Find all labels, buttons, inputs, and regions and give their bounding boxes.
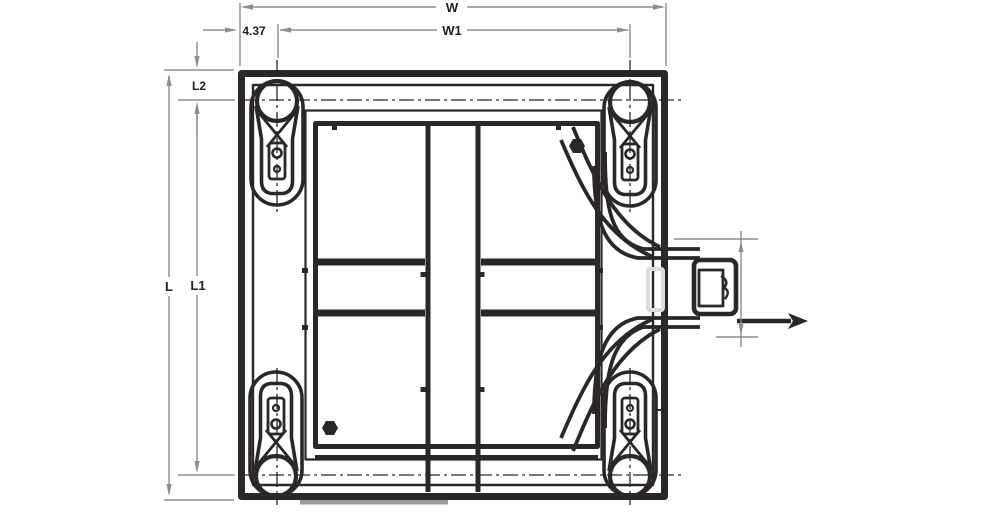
- dim-label-l: L: [165, 279, 173, 294]
- technical-drawing: W W1 4.37 L L1: [0, 0, 985, 532]
- dimension-caster-offset: 4.37: [203, 24, 266, 38]
- top-cover-panel: [302, 111, 666, 493]
- centerlines: [243, 60, 683, 505]
- drawing-canvas: W W1 4.37 L L1: [0, 0, 985, 532]
- shadow-bar: [300, 500, 448, 505]
- dimension-l2: L2: [192, 42, 206, 136]
- highlight-slot: [648, 269, 663, 310]
- dim-label-l2: L2: [192, 79, 206, 93]
- dim-label-4-37: 4.37: [242, 24, 266, 38]
- dim-label-w: W: [446, 0, 459, 15]
- connector-detail: [694, 260, 736, 314]
- dimension-l1: L1: [178, 100, 235, 475]
- hex-bolt-bottom-left: [322, 421, 338, 435]
- flow-arrow: [737, 313, 808, 329]
- dim-label-l1: L1: [190, 278, 205, 293]
- dimension-w1: W1: [278, 23, 630, 58]
- dim-label-w1: W1: [442, 23, 462, 38]
- caster-bottom-left: [250, 372, 302, 496]
